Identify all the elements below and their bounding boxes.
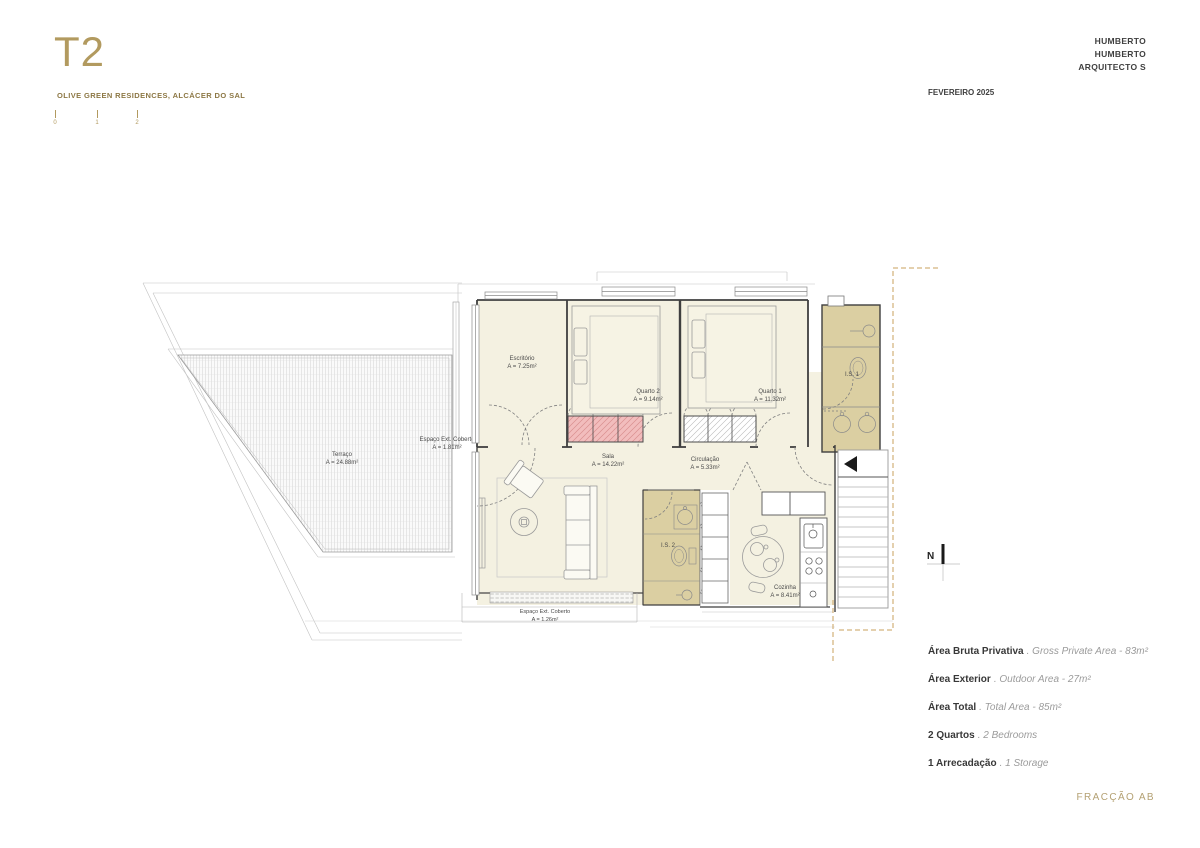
north-label: N xyxy=(927,551,934,562)
summary-label: Área Bruta Privativa xyxy=(928,646,1024,657)
summary-row: Área Exterior. Outdoor Area - 27m² xyxy=(928,666,1178,694)
covered-exterior-bottom-label: Espaço Ext. Coberto xyxy=(520,609,570,615)
circulacao-label: Circulação xyxy=(691,457,720,463)
escritorio-label: Escritório xyxy=(509,356,535,362)
is1-label: I.S. 1 xyxy=(845,372,860,378)
quarto2-area: A = 9.14m² xyxy=(633,397,662,403)
sala-label: Sala xyxy=(602,454,615,460)
summary-label: Área Total xyxy=(928,702,976,713)
summary-row: Área Total. Total Area - 85m² xyxy=(928,694,1178,722)
stairs xyxy=(838,450,888,608)
summary-row: Área Bruta Privativa. Gross Private Area… xyxy=(928,638,1178,666)
summary-label: 1 Arrecadação xyxy=(928,758,997,769)
quarto1-area: A = 11.32m² xyxy=(754,397,786,403)
kitchen-counter-icon xyxy=(800,518,827,607)
summary-detail: . Total Area - 85m² xyxy=(979,702,1061,713)
sala-area: A = 14.22m² xyxy=(592,462,625,468)
cozinha-area: A = 8.41m² xyxy=(770,593,799,599)
summary-detail: . 2 Bedrooms xyxy=(978,730,1037,741)
sofa-icon xyxy=(564,486,597,579)
summary-detail: . Gross Private Area - 83m² xyxy=(1027,646,1148,657)
covered-exterior-left-area: A = 1.81m² xyxy=(432,445,461,451)
wardrobe-icon-quarto2 xyxy=(568,416,643,442)
north-indicator: N xyxy=(927,544,960,581)
covered-exterior-bottom-area: A = 1.26m² xyxy=(532,617,559,623)
terrace-label: Terraço xyxy=(332,452,353,458)
wardrobe-icon-quarto1 xyxy=(684,416,756,442)
page: T2 OLIVE GREEN RESIDENCES, ALCÁCER DO SA… xyxy=(0,0,1200,848)
escritorio-area: A = 7.25m² xyxy=(507,364,536,370)
summary-row: 2 Quartos. 2 Bedrooms xyxy=(928,722,1178,750)
summary-detail: . Outdoor Area - 27m² xyxy=(994,674,1091,685)
summary-row: 1 Arrecadação. 1 Storage xyxy=(928,750,1178,778)
circulacao-area: A = 5.33m² xyxy=(690,465,719,471)
is2-label: I.S. 2 xyxy=(661,543,676,549)
fraction-label: FRACÇÃO AB xyxy=(1077,792,1155,803)
summary-label: Área Exterior xyxy=(928,674,991,685)
kitchen-island-icon xyxy=(762,492,825,515)
terrace: Terraço A = 24.88m² xyxy=(178,355,452,552)
summary-label: 2 Quartos xyxy=(928,730,975,741)
summary-detail: . 1 Storage xyxy=(1000,758,1049,769)
quarto1-label: Quarto 1 xyxy=(758,389,782,395)
storage-cabinets-icon xyxy=(702,493,728,603)
cozinha-label: Cozinha xyxy=(774,585,797,591)
north-needle xyxy=(942,544,945,564)
quarto2-label: Quarto 2 xyxy=(636,389,660,395)
covered-exterior-left-label: Espaço Ext. Coberto xyxy=(419,437,475,443)
area-summary: Área Bruta Privativa. Gross Private Area… xyxy=(928,638,1178,778)
terrace-area: A = 24.88m² xyxy=(326,460,359,466)
